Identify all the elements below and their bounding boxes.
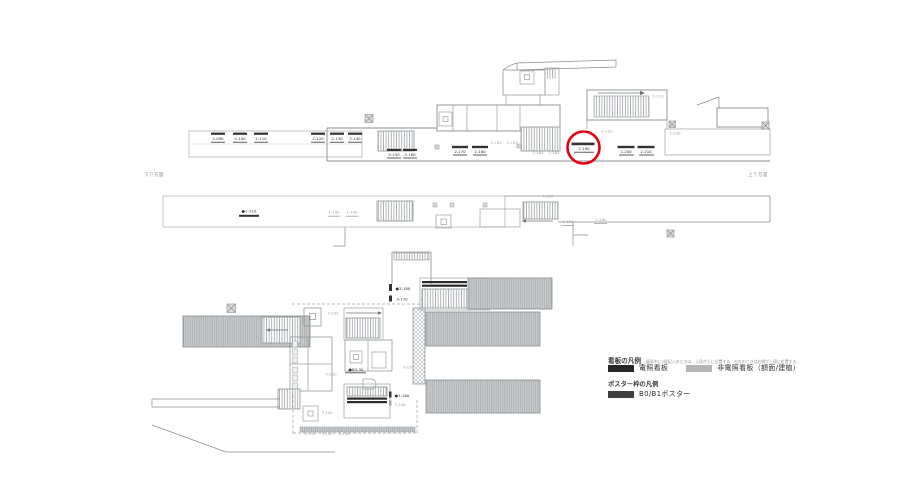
sign-underline	[233, 142, 247, 143]
sign-label-2-230: 2-230	[669, 131, 681, 136]
sign-label-3-120: 3-120	[321, 431, 333, 436]
upper-building	[503, 70, 545, 95]
sign-bar-2-160	[403, 149, 417, 151]
sign-label-●1-110: ●1-110	[242, 209, 257, 214]
sign-label-3-100: 3-100	[327, 311, 339, 316]
sign-label-1-160: 1-160	[595, 217, 607, 222]
drawing-canvas: 2-0902-1002-1102-1202-1302-1402-1502-160…	[0, 0, 919, 491]
direction-note-right: 上り方面	[748, 172, 768, 178]
escalator-bar	[347, 398, 387, 400]
sign-bar-2-200	[618, 146, 635, 148]
sign-label-3-200: 3-200	[325, 372, 337, 377]
legend-swatch-non-illuminated	[686, 365, 712, 372]
platform-band	[468, 278, 552, 309]
elevator-marker	[439, 112, 452, 126]
sign-underline	[211, 142, 225, 143]
canopy	[503, 60, 616, 70]
sign-vbar	[389, 401, 392, 406]
sign-bar-●1-110	[239, 215, 259, 217]
platform-band	[426, 380, 540, 413]
sign-underline	[561, 225, 574, 226]
wing-wall	[152, 399, 280, 407]
sign-bar-2-100	[233, 133, 247, 135]
sign-label-2-090: 2-090	[212, 136, 224, 141]
sign-underline	[619, 155, 634, 156]
sign-label-2-150: 2-150	[388, 152, 400, 157]
arrow-icon	[378, 311, 382, 315]
sign-label-2-210: 2-210	[640, 149, 652, 154]
crossed-box-marker	[669, 121, 676, 128]
sign-label-2-130: 2-130	[331, 136, 343, 141]
sign-label-3-170: 3-170	[396, 297, 408, 302]
arrow-icon	[522, 219, 527, 223]
sign-underline	[473, 155, 487, 156]
small-box-marker	[450, 203, 454, 207]
sign-underline	[387, 158, 401, 159]
sign-label-2-180: 2-180	[474, 149, 486, 154]
sign-label-2-160: 2-160	[404, 152, 416, 157]
sign-label-3-130: 3-130	[338, 431, 350, 436]
sign-label-2-140: 2-140	[349, 136, 361, 141]
sign-underline	[330, 142, 344, 143]
escalator-bar	[422, 281, 467, 283]
stair-hatch	[278, 389, 300, 409]
sign-vbar	[389, 284, 392, 291]
small-box-marker	[435, 145, 439, 149]
crossed-box-marker	[365, 115, 373, 123]
crosshatch-wall	[413, 308, 425, 384]
sign-vbar	[389, 392, 392, 398]
sign-bar-2-130	[330, 133, 344, 135]
legend-label-poster: B0/B1ポスター	[639, 389, 691, 399]
sign-strip	[300, 427, 415, 432]
sign-underline	[346, 216, 359, 217]
sign-bar-2-210	[638, 146, 655, 148]
roof-slope	[697, 97, 719, 108]
sign-underline	[453, 155, 467, 156]
sign-label-2-190: 2-190	[578, 146, 590, 151]
sign-label-2-183: 2-183	[506, 140, 518, 145]
sign-underline	[254, 142, 268, 143]
sign-underline	[348, 142, 362, 143]
sign-label-2-200: 2-200	[620, 149, 632, 154]
sign-label-2-110: 2-110	[255, 136, 267, 141]
sign-label-1-200: 1-200	[542, 194, 554, 199]
band-right-end	[665, 129, 770, 155]
sign-bar-2-140	[348, 133, 362, 135]
right-building	[717, 108, 768, 127]
sign-label-2-184: 2-184	[532, 150, 544, 155]
legend-label-non-illuminated: 非電照看板（額面/建植）	[717, 363, 800, 373]
elevator-marker	[350, 351, 362, 363]
sign-bar-2-170	[452, 146, 468, 148]
elevator-marker	[436, 215, 451, 228]
small-box-marker	[433, 203, 437, 207]
stair-hatch	[347, 387, 387, 396]
sign-bar-2-110	[254, 133, 268, 135]
sign-label-3-150: 3-150	[394, 402, 406, 407]
sign-label-2-100: 2-100	[234, 136, 246, 141]
toilet-fixtures	[293, 341, 298, 389]
sign-label-2-220: 2-220	[601, 129, 613, 134]
stair-hatch	[547, 70, 557, 79]
legend-swatch-poster	[608, 391, 634, 398]
room	[480, 209, 520, 227]
sign-underline	[311, 142, 325, 143]
elevator-marker	[303, 406, 318, 421]
level1-plan	[163, 196, 770, 246]
crossed-box-marker	[762, 122, 769, 129]
sign-label-2-185: 2-185	[548, 150, 560, 155]
escalator-bar	[422, 285, 467, 287]
stair-hatch	[422, 289, 470, 308]
sign-label-●B3-30: ●B3-30	[349, 367, 364, 372]
sign-label-●3-160: ●3-160	[395, 393, 410, 398]
escalator-bar	[347, 401, 387, 403]
crossed-box-marker	[227, 304, 236, 313]
stair-hatch	[394, 253, 429, 260]
stair-hatch	[377, 201, 558, 221]
sign-underline	[345, 372, 366, 373]
station-plan-svg: 2-0902-1002-1102-1202-1302-1402-1502-160…	[0, 0, 919, 491]
stair-hatch	[594, 96, 649, 117]
level3-plan	[152, 252, 552, 452]
sign-label-2-120: 2-120	[312, 136, 324, 141]
sign-label-2-170: 2-170	[454, 149, 466, 154]
sign-vbar	[389, 296, 392, 302]
legend: 看板の凡例図面中に2段記入のときは、上段が上に位置する。左右のときは右側が上段に…	[606, 346, 896, 410]
sign-underline	[594, 223, 607, 224]
sign-bar-2-180	[472, 146, 488, 148]
stair-hatch	[346, 318, 380, 338]
sign-bar-2-150	[387, 149, 401, 151]
legend-poster-title: ポスター枠の凡例	[608, 379, 658, 388]
elevator-marker	[520, 71, 534, 84]
sign-label-1-130: 1-130	[328, 210, 340, 215]
sign-label-2-182: 2-182	[490, 140, 502, 145]
sign-underline	[403, 158, 417, 159]
sign-label-1-140: 1-140	[346, 210, 358, 215]
platform-band	[426, 312, 540, 346]
sign-label-1-150: 1-150	[562, 219, 574, 224]
sign-underline	[328, 216, 341, 217]
legend-swatch-illuminated	[608, 365, 634, 372]
sign-label-3-110: 3-110	[652, 94, 664, 99]
sign-bar-2-090	[211, 133, 225, 135]
sign-underline	[574, 152, 594, 153]
sign-bar-2-120	[311, 133, 325, 135]
sign-label-3-140: 3-140	[321, 410, 333, 415]
sign-label-3-210: 3-210	[402, 365, 414, 370]
legend-label-illuminated: 電照看板	[639, 363, 668, 373]
sign-bar-2-190	[572, 143, 595, 146]
sign-label-3-115: 3-115	[304, 431, 316, 436]
sign-underline	[639, 155, 654, 156]
crossed-box-marker	[667, 230, 674, 237]
direction-note-left: 下り方面	[144, 172, 164, 178]
arrow-icon	[640, 91, 645, 95]
sign-label-●3-180: ●3-180	[396, 286, 411, 291]
small-box-marker	[483, 203, 487, 207]
